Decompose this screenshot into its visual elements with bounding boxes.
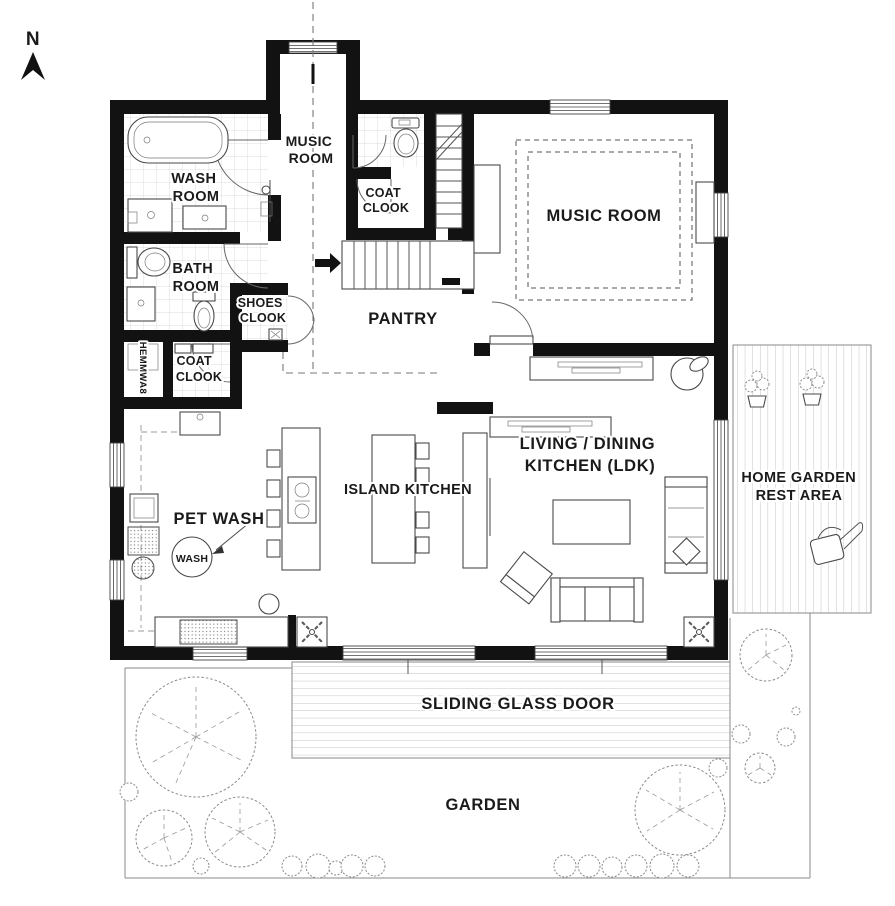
shower-base <box>127 287 155 321</box>
coat-shelf <box>175 344 213 353</box>
tree-icon <box>205 797 275 867</box>
toilet <box>127 247 170 278</box>
corner-sink <box>130 494 158 522</box>
pet-wash-label: PET WASH <box>174 510 265 528</box>
tree-icon <box>740 629 792 681</box>
music-room-piano <box>696 182 714 243</box>
island-counter <box>372 435 415 563</box>
planter-box-icon <box>297 617 327 647</box>
coffee-table <box>553 500 630 544</box>
pantry-label: PANTRY <box>368 310 438 328</box>
wall-cabinet <box>180 412 220 435</box>
washroom-vanity <box>183 206 226 229</box>
tree-icon <box>136 677 256 797</box>
back-counter <box>463 433 487 568</box>
music-room-label: MUSIC ROOM <box>546 207 661 225</box>
garden-label: GARDEN <box>445 796 520 814</box>
sofa <box>551 578 643 622</box>
stool-round <box>259 594 279 614</box>
hall-music-room-label: MUSIC ROOM <box>286 133 337 166</box>
toilet <box>392 118 419 157</box>
sliding-glass-door-label: SLIDING GLASS DOOR <box>421 695 614 713</box>
tree-icon <box>136 810 192 866</box>
pet-mat <box>128 527 159 555</box>
shoe-rack-item <box>269 329 282 340</box>
tree-icon <box>745 753 775 783</box>
north-arrow-icon <box>21 52 45 80</box>
tv-board <box>490 417 611 437</box>
sideboard <box>530 357 653 380</box>
tree-icon <box>635 765 725 855</box>
island-kitchen-label: ISLAND KITCHEN <box>344 482 472 498</box>
music-room-cabinet <box>474 165 500 253</box>
cooktop <box>288 477 316 523</box>
shoes-clook-label: SHOES CLOOK <box>238 296 286 325</box>
toilet <box>193 292 215 331</box>
washroom-sink <box>128 199 172 232</box>
bathtub <box>128 117 228 163</box>
section-line-tick <box>312 64 315 84</box>
coat-clook-upper-label: COAT CLOOK <box>363 186 409 215</box>
laundry-label: HEMMWA8 <box>137 342 148 394</box>
pet-wash-tub-label: WASH <box>176 553 208 565</box>
planter-box-icon <box>684 617 714 647</box>
north-label: N <box>26 29 40 50</box>
shelf-unit <box>665 477 707 573</box>
pet-basket <box>132 557 154 579</box>
floor-plan: N MUSIC ROOM WASH ROOM BATH ROOM SHOES C… <box>0 0 895 906</box>
